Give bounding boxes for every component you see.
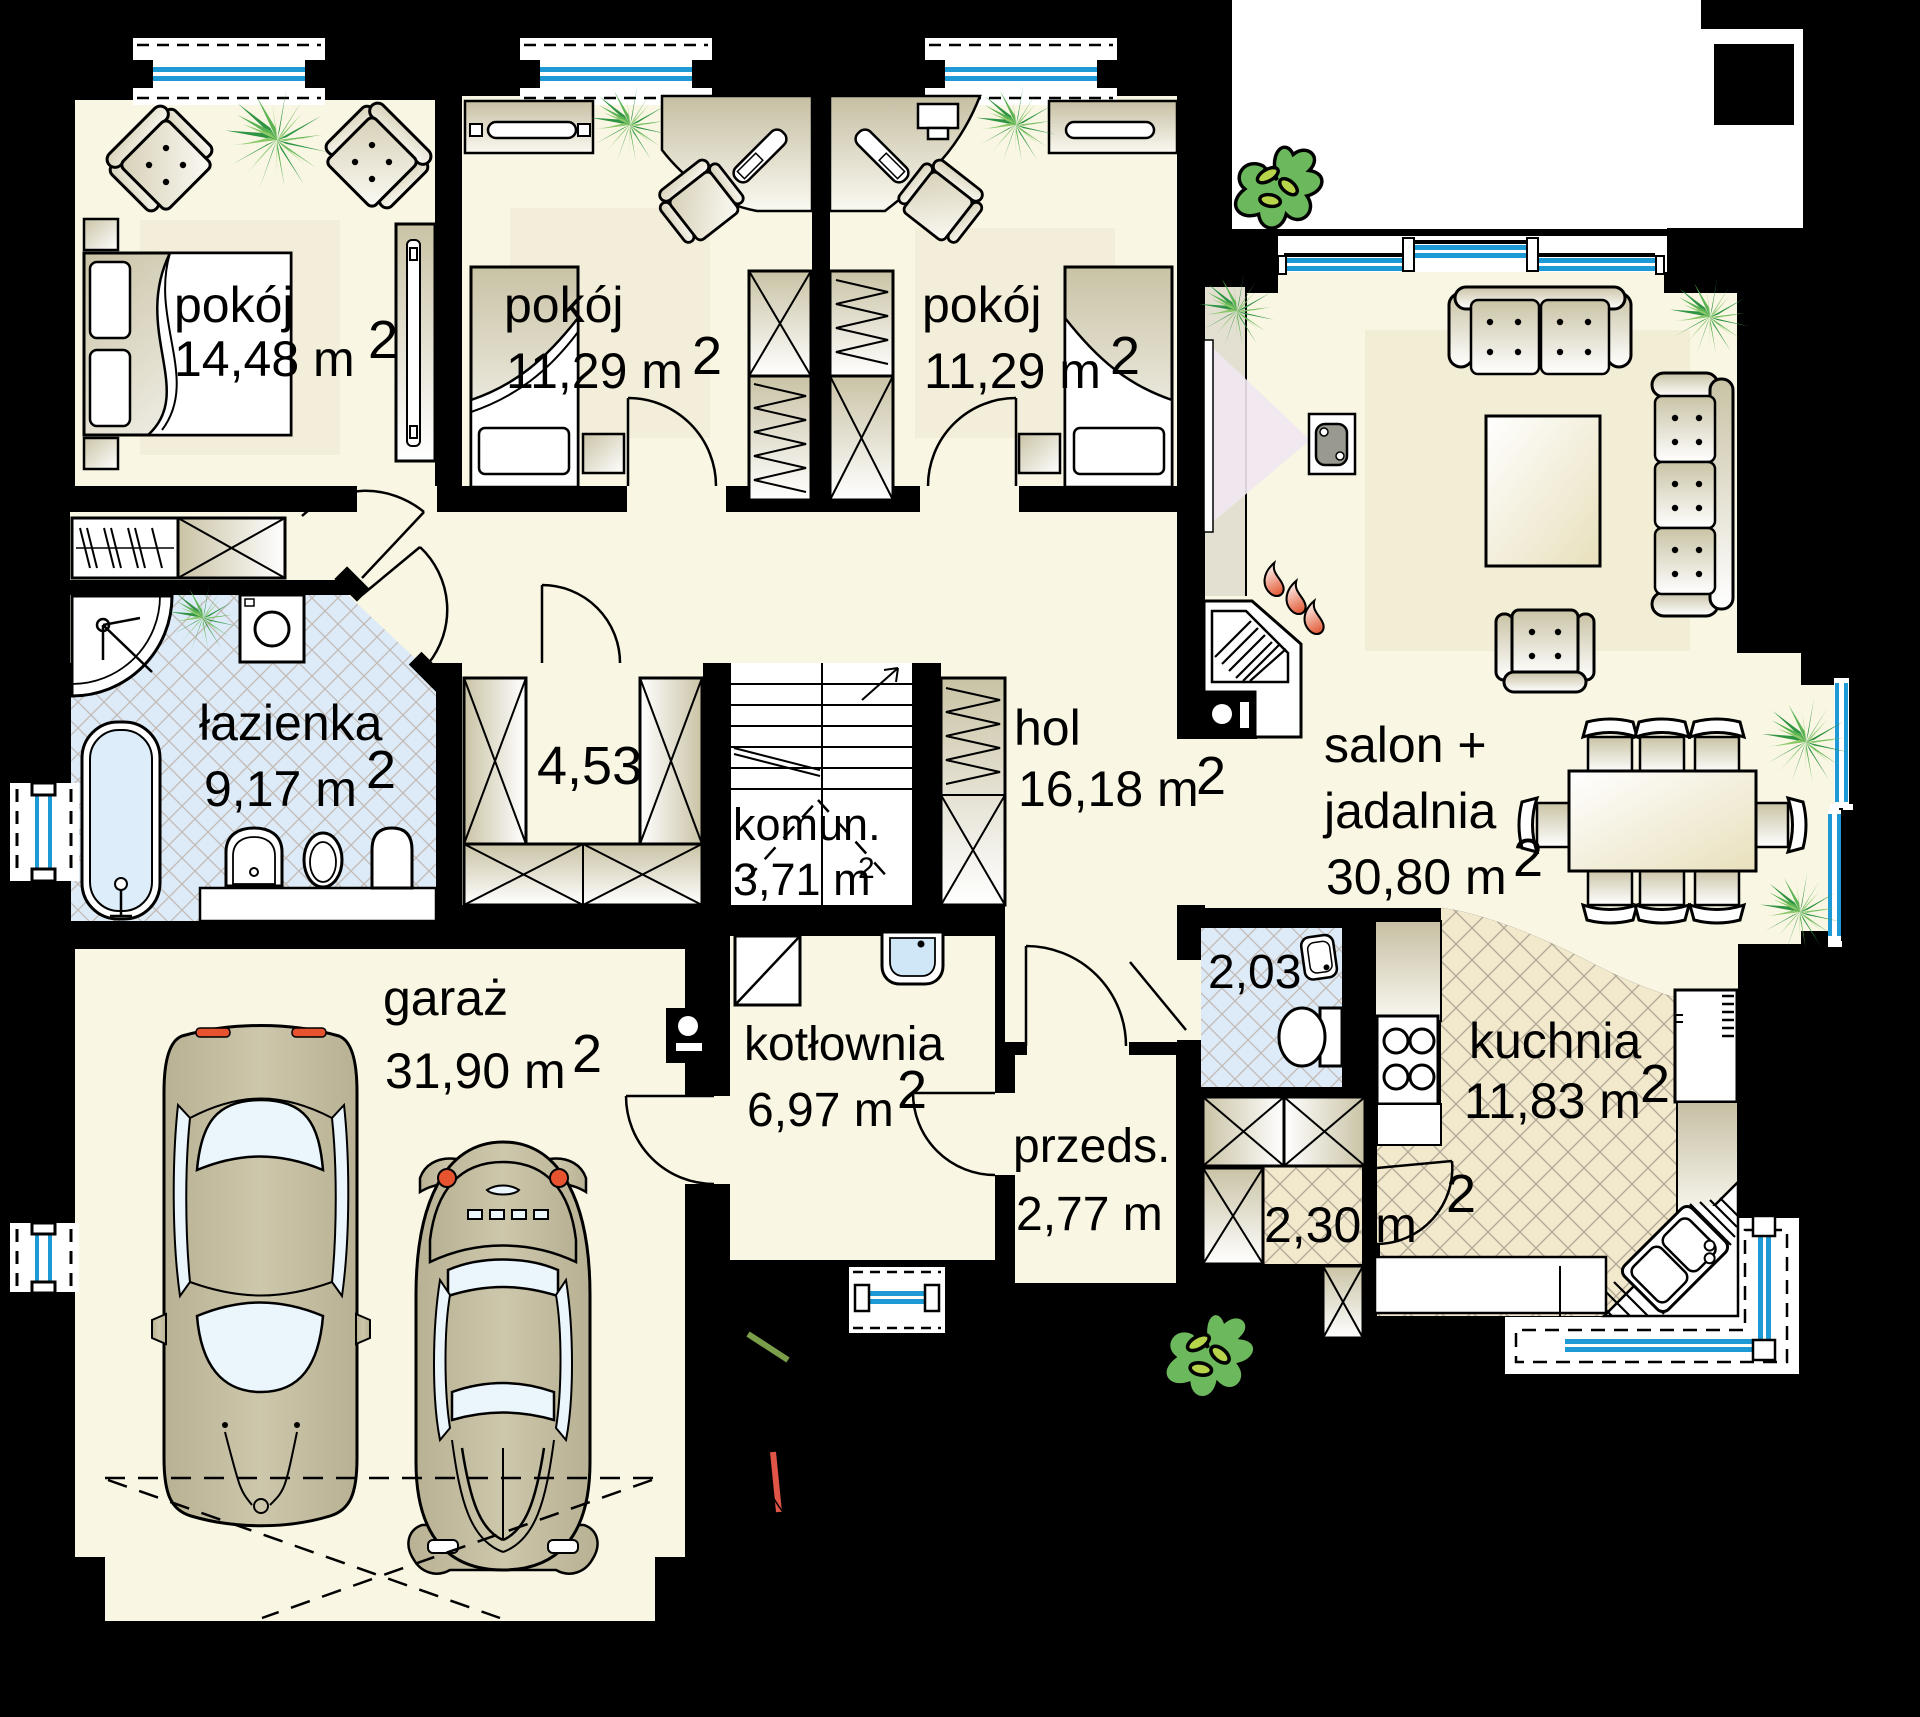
svg-text:łazienka: łazienka <box>199 695 383 751</box>
svg-text:2: 2 <box>1446 1164 1476 1224</box>
svg-text:2,30 m: 2,30 m <box>1264 1197 1417 1253</box>
svg-text:2: 2 <box>368 310 398 370</box>
svg-text:przeds.: przeds. <box>1013 1120 1170 1173</box>
svg-text:jadalnia: jadalnia <box>1322 783 1497 839</box>
svg-text:3,71 m: 3,71 m <box>733 854 871 905</box>
svg-text:30,80 m: 30,80 m <box>1326 849 1507 905</box>
svg-text:2: 2 <box>897 1060 927 1120</box>
svg-text:2: 2 <box>858 852 875 885</box>
svg-text:2,03: 2,03 <box>1208 946 1301 999</box>
svg-text:6,97 m: 6,97 m <box>747 1084 894 1137</box>
svg-text:14,48 m: 14,48 m <box>174 331 355 387</box>
svg-text:pokój: pokój <box>174 277 294 333</box>
svg-text:2,77 m: 2,77 m <box>1016 1188 1163 1241</box>
svg-text:komun.: komun. <box>733 799 881 850</box>
svg-text:16,18 m: 16,18 m <box>1018 761 1199 817</box>
svg-text:2: 2 <box>692 326 722 386</box>
svg-text:2: 2 <box>366 740 396 800</box>
svg-text:pokój: pokój <box>504 277 624 333</box>
svg-text:2: 2 <box>1640 1054 1670 1114</box>
svg-text:4,53: 4,53 <box>537 736 642 796</box>
svg-text:salon +: salon + <box>1324 717 1487 773</box>
svg-text:2: 2 <box>1196 746 1226 806</box>
svg-text:2: 2 <box>1110 326 1140 386</box>
svg-text:kuchnia: kuchnia <box>1469 1013 1642 1069</box>
svg-text:garaż: garaż <box>383 970 508 1026</box>
svg-text:2: 2 <box>1513 828 1543 888</box>
svg-text:pokój: pokój <box>922 277 1042 333</box>
svg-text:11,29 m: 11,29 m <box>506 343 683 399</box>
svg-text:9,17 m: 9,17 m <box>204 761 357 817</box>
svg-text:11,83 m: 11,83 m <box>1464 1073 1641 1129</box>
svg-text:2: 2 <box>572 1024 602 1084</box>
svg-text:hol: hol <box>1014 700 1081 756</box>
svg-text:11,29 m: 11,29 m <box>924 343 1101 399</box>
svg-text:31,90 m: 31,90 m <box>385 1043 566 1099</box>
